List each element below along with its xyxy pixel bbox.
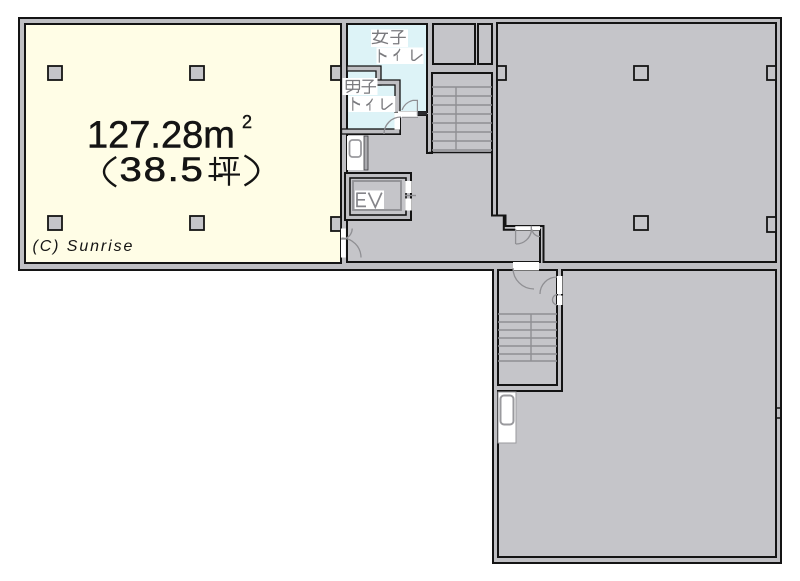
svg-text:2: 2 (242, 112, 252, 132)
svg-text:(C) Sunrise: (C) Sunrise (33, 238, 135, 255)
svg-text:38.5: 38.5 (120, 150, 205, 188)
